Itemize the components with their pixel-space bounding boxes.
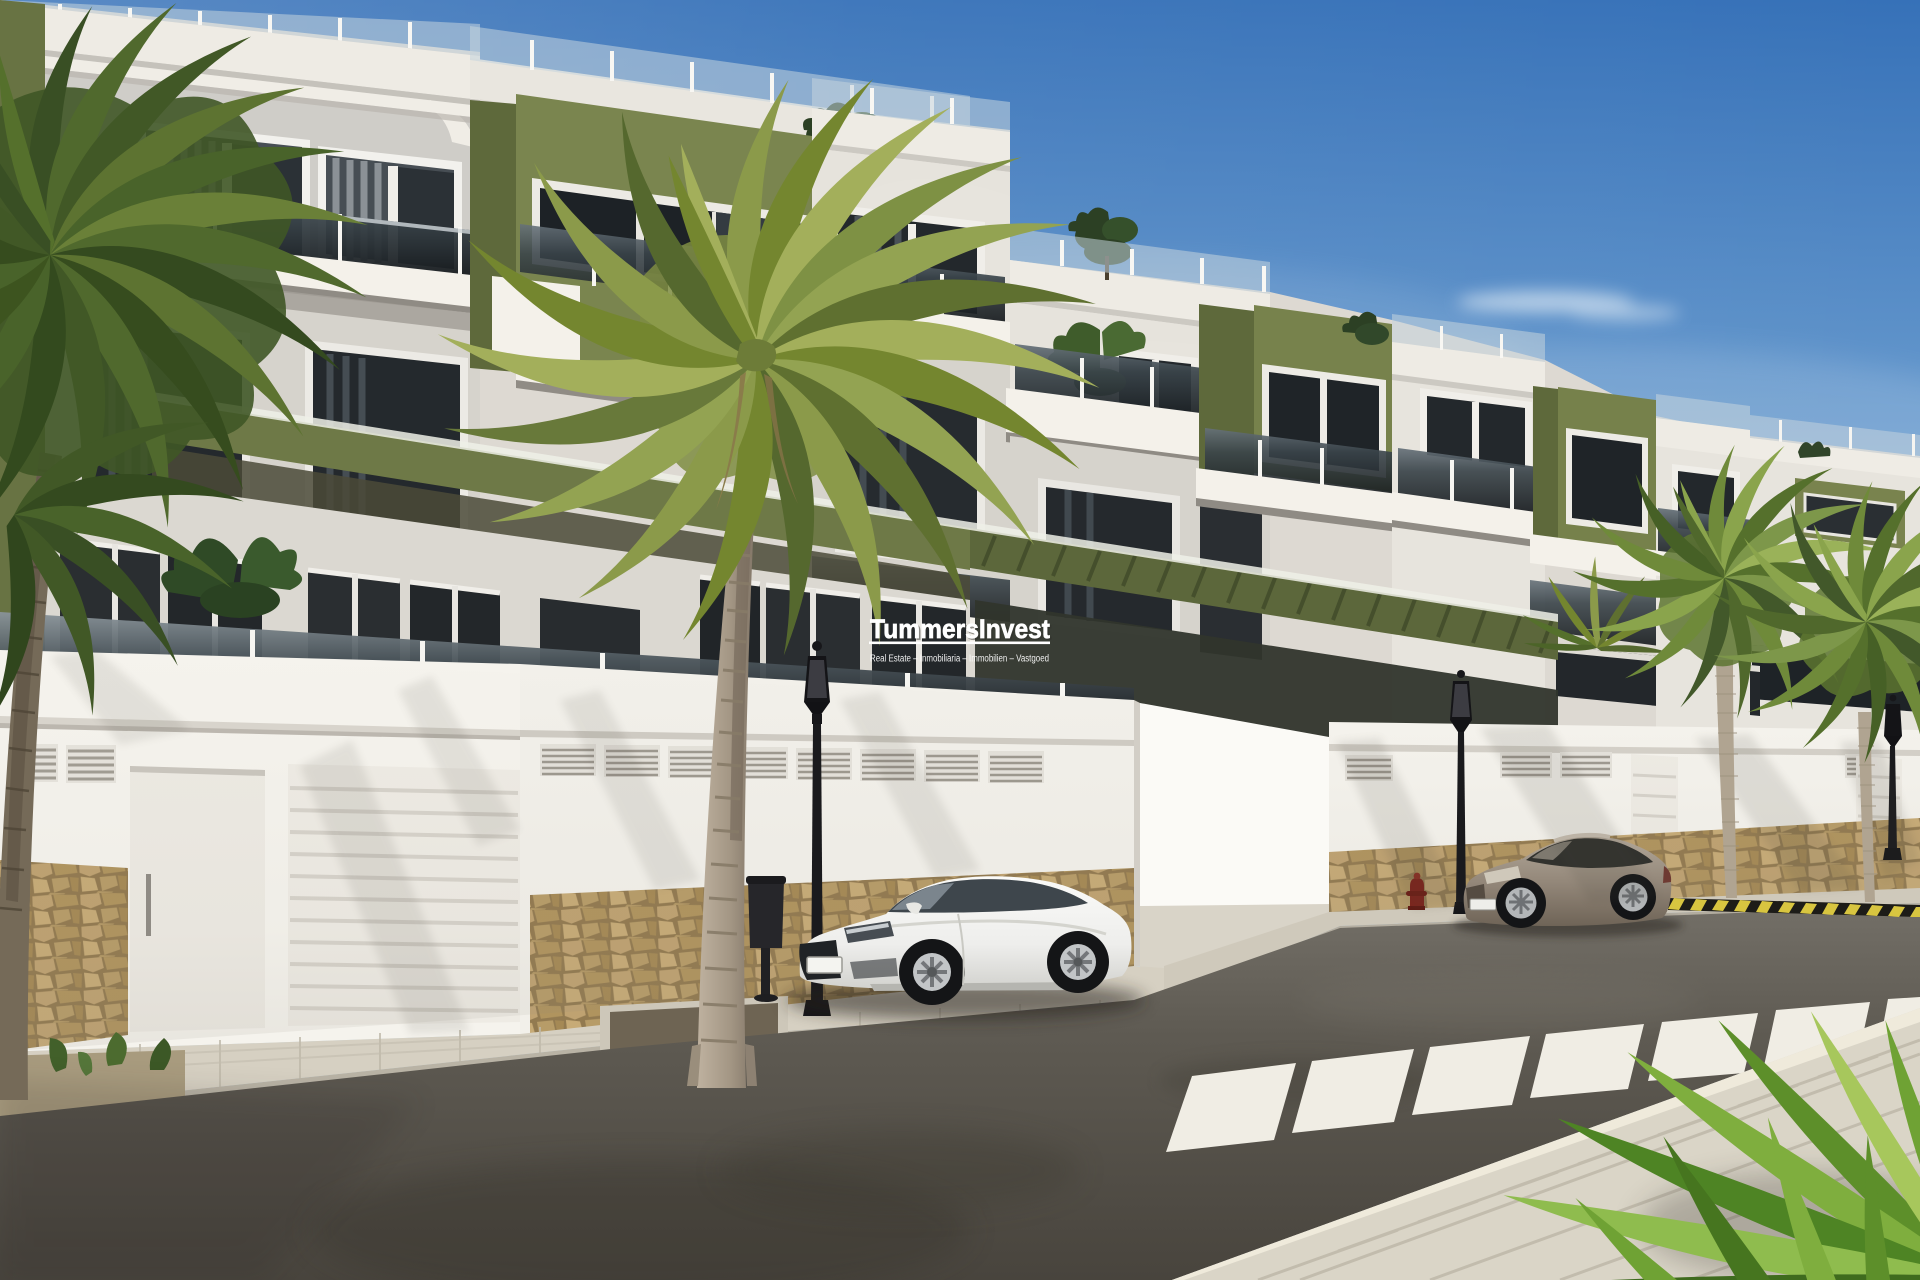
svg-text:TummersInvest: TummersInvest [870,614,1050,644]
svg-text:Real Estate – Inmobiliaria – I: Real Estate – Inmobiliaria – Immobilien … [870,654,1049,665]
